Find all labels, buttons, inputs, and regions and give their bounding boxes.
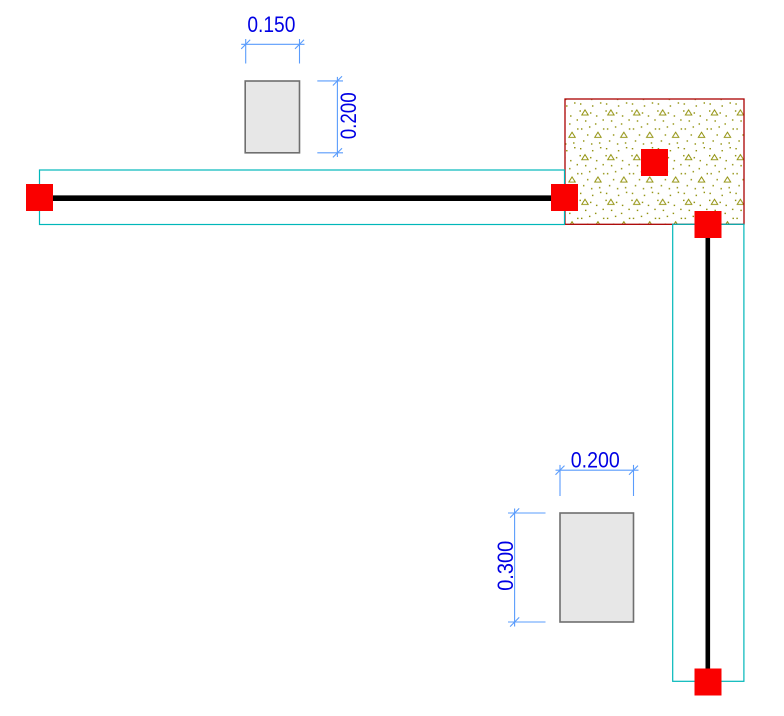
svg-text:0.200: 0.200 — [336, 92, 361, 139]
svg-text:0.200: 0.200 — [571, 448, 620, 473]
svg-text:0.300: 0.300 — [493, 541, 518, 591]
svg-text:0.150: 0.150 — [247, 12, 295, 37]
